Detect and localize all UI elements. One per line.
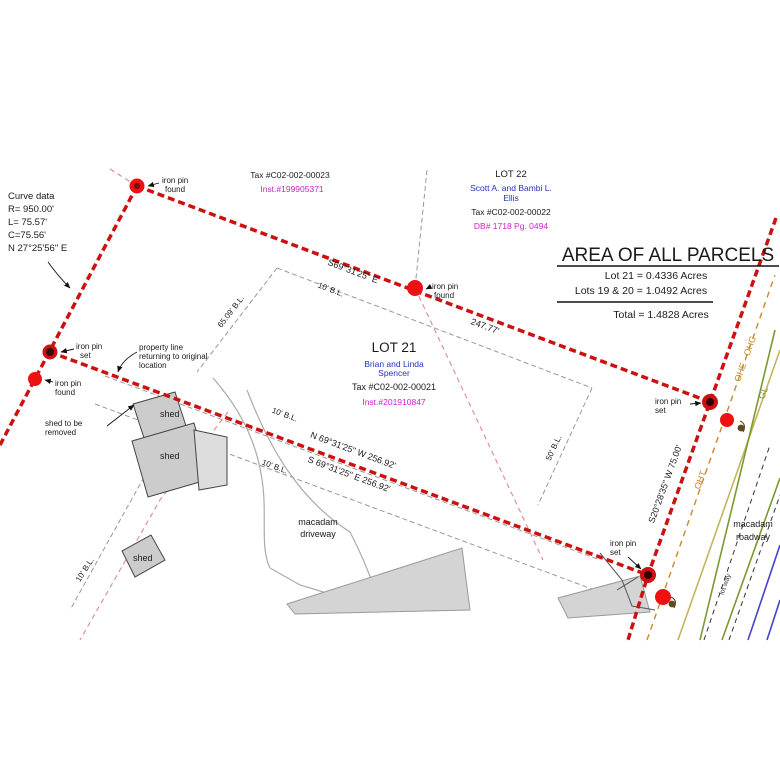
note-line: location: [139, 361, 167, 370]
leader-arrows: [45, 183, 701, 569]
roadway-label-2: roadway: [736, 532, 771, 542]
setback-label-10: 10' B.L.: [317, 281, 345, 299]
red-marker-dot: [655, 589, 671, 605]
note-line: property line: [139, 343, 184, 352]
pin-leader: [426, 287, 430, 289]
lot21-name: LOT 21: [372, 340, 417, 355]
lot21-owner-2: Spencer: [378, 368, 410, 378]
curve-radius: R= 950.00': [8, 204, 54, 215]
curve-length: L= 75.57': [8, 217, 47, 228]
side-setback-50: [538, 388, 592, 505]
lot-way-label: lot way: [719, 573, 733, 596]
shed-label: shed: [160, 409, 180, 419]
plat-drawing: Curve data R= 950.00' L= 75.57' C=75.56'…: [0, 0, 780, 780]
iron-pin-set-center: [46, 348, 54, 356]
overhead-telephone-label: OHT: [692, 469, 708, 491]
shed-extension: [194, 430, 227, 490]
pin-leader: [690, 403, 701, 404]
setback-bottom-left: [70, 470, 148, 610]
area-table-title: AREA OF ALL PARCELS: [562, 245, 774, 266]
area-lots19-20: Lots 19 & 20 = 1.0492 Acres: [575, 285, 707, 297]
survey-plat-page: Curve data R= 950.00' L= 75.57' C=75.56'…: [0, 0, 780, 780]
iron-pin-set-label: set: [80, 351, 91, 360]
lot22-owner: Scott A. and Bambi L.: [470, 183, 552, 193]
setback-label-10: 10' B.L.: [261, 458, 289, 476]
adjoiner-tax-id: Tax #C02-002-00023: [250, 170, 330, 180]
area-total: Total = 1.4828 Acres: [613, 309, 708, 321]
note-line: removed: [45, 428, 76, 437]
water-line-2: [767, 600, 780, 640]
lot22-deed: DB# 1718 Pg. 0494: [474, 221, 548, 231]
iron-pin-found-marker: [407, 280, 423, 296]
shed-removal-note: shed to be removed: [45, 419, 83, 437]
iron-pin-found-label: found: [434, 291, 454, 300]
iron-pin-label: iron pin: [76, 342, 102, 351]
curve-data-note: Curve data R= 950.00' L= 75.57' C=75.56'…: [8, 191, 67, 254]
driveway-label-2: driveway: [300, 529, 336, 539]
pavement-area-2: [558, 576, 650, 618]
lot22-tax-id: Tax #C02-002-00022: [471, 207, 551, 217]
iron-pin-label: iron pin: [162, 176, 188, 185]
curve-bearing: N 27°25'56" E: [8, 243, 67, 254]
iron-pin-label: iron pin: [610, 539, 636, 548]
area-table: AREA OF ALL PARCELS Lot 21 = 0.4336 Acre…: [557, 245, 779, 321]
shed-label: shed: [160, 451, 180, 461]
iron-pin-set-center: [706, 398, 714, 406]
adjoiner-instrument: Inst.#199905371: [260, 184, 324, 194]
note-line: shed to be: [45, 419, 83, 428]
distance-north-line: 247.77': [470, 316, 501, 336]
utility-pole-icon: [738, 421, 745, 432]
iron-pin-label: iron pin: [432, 282, 458, 291]
iron-pin-set-label: set: [655, 406, 666, 415]
area-lot21: Lot 21 = 0.4336 Acres: [605, 270, 707, 282]
bearing-east-line: S20°28'35" W 75.00': [646, 443, 684, 524]
overhead-electric-cable-label: OHE - OHC: [732, 334, 758, 383]
note-line: returning to original: [139, 352, 208, 361]
lot21-tax-id: Tax #C02-002-00021: [352, 382, 436, 392]
driveway-right-edge: [247, 390, 377, 595]
setback-label-65: 65.09' B.L.: [216, 294, 246, 329]
lot22-owner-2: Ellis: [503, 193, 519, 203]
lot21-info: LOT 21 Brian and Linda Spencer Tax #C02-…: [352, 340, 436, 407]
iron-pin-found-label: found: [165, 185, 185, 194]
iron-pin-label: iron pin: [655, 397, 681, 406]
water-line-1: [748, 545, 780, 640]
bearing-north-line: S69°31'25" E: [326, 257, 379, 285]
pin-leader: [148, 183, 159, 186]
sheds: [122, 392, 227, 577]
property-line-note: property line returning to original loca…: [139, 343, 208, 370]
pin-leader: [61, 349, 74, 352]
lot22-info: LOT 22 Scott A. and Bambi L. Ellis Tax #…: [470, 169, 552, 231]
roadway-label: macadam: [733, 519, 773, 529]
shed-note-leader: [107, 405, 134, 426]
side-setback-65: [197, 268, 277, 372]
shed-label: shed: [133, 553, 153, 563]
curve-data-leader: [48, 262, 70, 288]
lot22-name: LOT 22: [495, 169, 527, 180]
pavement-area: [287, 548, 470, 614]
curve-chord: C=75.56': [8, 230, 46, 241]
overhead-utility-line: [647, 275, 775, 640]
iron-pin-label: iron pin: [55, 379, 81, 388]
iron-pin-set-center: [644, 571, 652, 579]
red-marker-dot: [720, 413, 734, 427]
iron-pin-found-label: found: [55, 388, 75, 397]
utility-lines: [647, 275, 780, 640]
lot22-boundary-dashed: [415, 170, 427, 288]
setback-label-50: 50' B.L.: [544, 434, 564, 462]
driveway-label: macadam: [298, 517, 338, 527]
iron-pin-set-label: set: [610, 548, 621, 557]
gas-line-label: GL: [756, 386, 770, 401]
curve-data-title: Curve data: [8, 191, 55, 202]
property-line-note-leader: [118, 352, 137, 372]
lot21-instrument: Inst.#201910847: [362, 397, 426, 407]
pin-leader: [45, 380, 53, 382]
iron-pin-found-marker: [28, 372, 42, 386]
setback-label-10: 10' B.L.: [271, 406, 299, 424]
iron-pin-found-center: [134, 183, 140, 189]
